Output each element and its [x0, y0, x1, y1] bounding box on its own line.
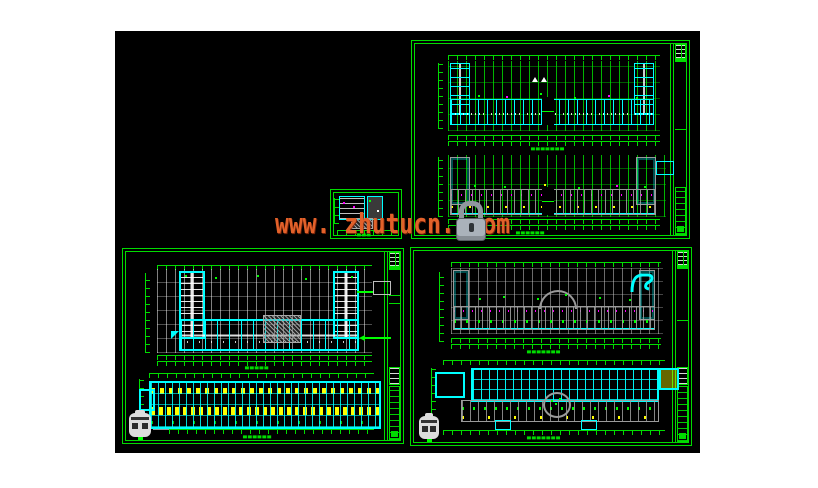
title-block-bar [677, 266, 688, 269]
padlock-icon [456, 201, 486, 241]
side-room [656, 161, 674, 175]
dimension-row [149, 373, 374, 378]
dimension-column [438, 63, 443, 129]
title-block-table [677, 386, 688, 442]
dimension-row [443, 360, 665, 365]
corridor-gap [542, 97, 554, 125]
title-block-line [387, 251, 388, 441]
dimension-column [439, 272, 444, 342]
stamp-window [422, 426, 428, 432]
dimension-row [448, 135, 660, 140]
side-annex [373, 281, 391, 295]
stamp-tick [427, 439, 432, 442]
plan-caption: ▄▄▄▄▄ [245, 365, 269, 370]
annotation-specks [551, 400, 553, 402]
annotation-specks [185, 275, 187, 277]
title-block-divider [675, 129, 686, 130]
title-block-table [389, 386, 400, 440]
north-arrow [541, 77, 547, 82]
floor-plan-upper: ▄▄▄▄▄▄▄ [438, 55, 670, 151]
title-block [384, 251, 401, 441]
title-block-divider [389, 295, 400, 296]
revision-table [389, 252, 400, 267]
dimension-column [145, 273, 150, 353]
floor-plan-lower: ▄▄▄▄▄▄ [139, 373, 385, 439]
title-block-line [675, 250, 676, 443]
stamp-band [131, 417, 149, 420]
north-arrow [532, 77, 538, 82]
annotation-specks [478, 95, 480, 97]
stamp-tick [138, 437, 143, 440]
floor-plan-upper: ▄▄▄▄▄ [145, 265, 383, 369]
stair-tail [139, 389, 155, 411]
cad-viewport: ▄▄▄▄▄▄▄ ▄▄▄▄▄▄ [115, 31, 700, 453]
sheet-bottom-left: ▄▄▄▄▄ ▄▄▄▄▄▄ [122, 248, 404, 444]
page-background: ▄▄▄▄▄▄▄ ▄▄▄▄▄▄ [0, 0, 818, 488]
floor-plan-lower: ▄▄▄▄▄▄▄ [431, 360, 675, 440]
stamp-window [142, 423, 148, 429]
stamp-window [132, 423, 138, 429]
stamp-window [430, 426, 436, 432]
dimension-row [448, 55, 660, 60]
stamp-band [421, 420, 437, 423]
stamp-logo [129, 413, 151, 437]
title-block-divider [677, 320, 688, 321]
title-block-box [389, 367, 400, 385]
leader-line [357, 291, 373, 293]
stamp-logo [419, 416, 439, 439]
rotunda [543, 392, 571, 418]
padlock-body [456, 218, 486, 241]
title-block-divider [389, 303, 400, 304]
annotation-specks [474, 185, 476, 187]
watermark: www. zhutucn. com [275, 201, 555, 245]
title-block-bar [389, 267, 400, 270]
revision-table [675, 44, 686, 59]
corner-wall [171, 331, 179, 339]
title-block-bar [675, 59, 686, 62]
floor-plan-upper: ▄▄▄▄▄▄▄ [439, 262, 675, 356]
ramp-hook [629, 270, 655, 296]
plan-caption: ▄▄▄▄▄▄ [243, 434, 272, 439]
building-main-band [453, 306, 655, 330]
plan-caption: ▄▄▄▄▄▄▄ [527, 349, 561, 354]
south-porch [581, 420, 597, 430]
annotation-specks [479, 298, 481, 300]
padlock-keyhole [469, 223, 474, 232]
sheet-bottom-right: ▄▄▄▄▄▄▄ ▄▄▄▄▄▄▄ [410, 247, 692, 446]
east-room [659, 368, 679, 390]
atrium-hatch [263, 315, 301, 343]
south-porch [495, 420, 511, 430]
dimension-row [451, 262, 661, 267]
dimension-row [157, 355, 372, 360]
revision-table [677, 251, 688, 266]
building-block [149, 381, 381, 429]
west-rooms [435, 372, 465, 398]
leader-line [365, 337, 391, 339]
plan-caption: ▄▄▄▄▄▄▄ [527, 435, 561, 440]
dimension-row [451, 338, 661, 343]
